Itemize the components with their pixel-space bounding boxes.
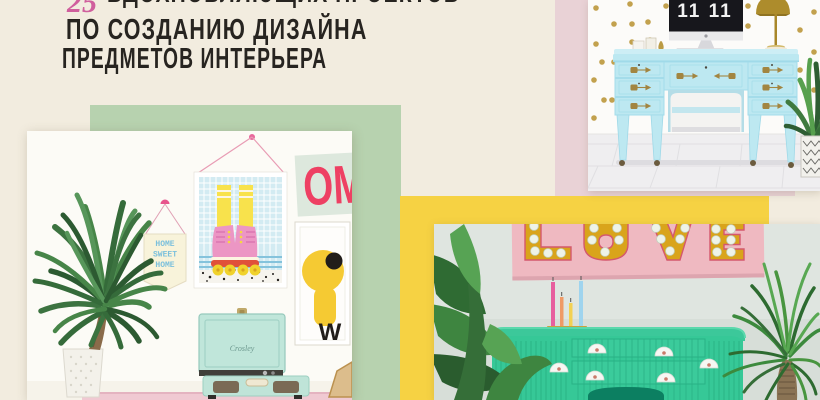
svg-text:SWEET: SWEET [153,251,177,260]
svg-text:OM: OM [302,154,352,217]
svg-text:W: W [319,319,342,346]
svg-text:HOME: HOME [155,261,174,270]
svg-text:11 11: 11 11 [677,1,732,22]
svg-text:Crosley: Crosley [230,344,255,353]
svg-text:HOME: HOME [155,240,174,249]
